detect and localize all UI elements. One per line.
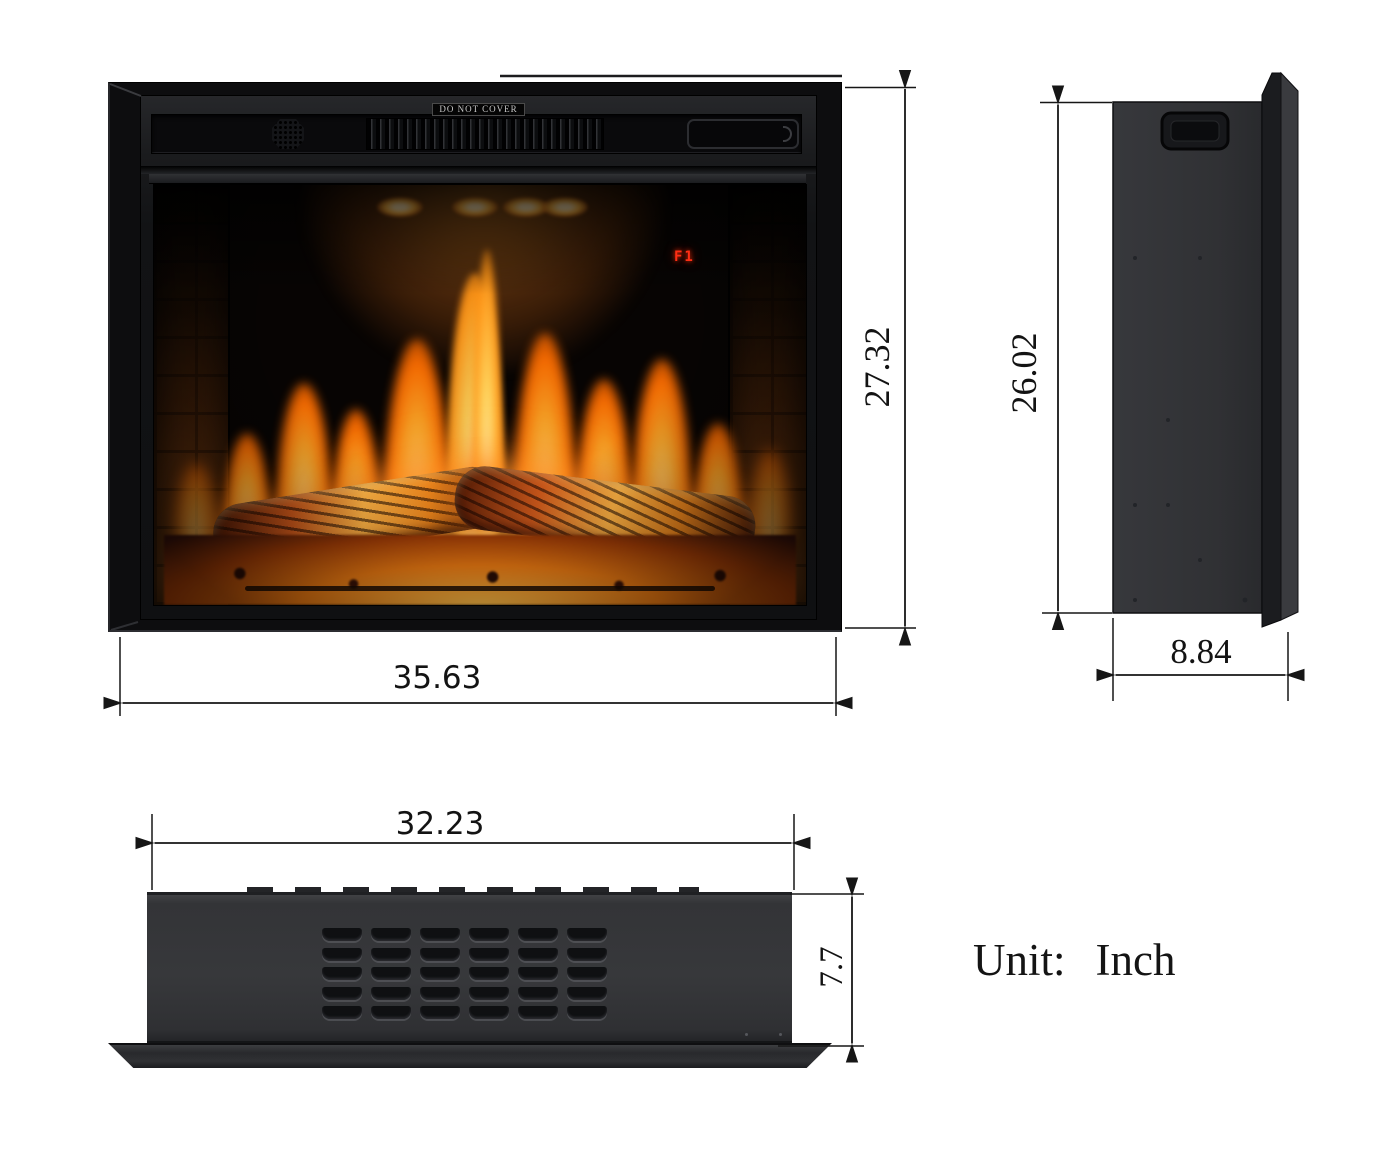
dim-label-top-width: 32.23 <box>360 806 520 842</box>
dim-label-side-depth: 8.84 <box>1131 632 1271 672</box>
dim-label-top-depth: 7.7 <box>815 897 849 1037</box>
front-bevel-bottom-left <box>111 622 138 630</box>
dim-side-height <box>1040 103 1112 614</box>
dimension-and-sideview-drawing <box>0 0 1400 1176</box>
unit-note-value: Inch <box>1096 935 1176 985</box>
dim-label-front-width: 35.63 <box>357 660 517 696</box>
unit-note-label: Unit: <box>973 935 1066 985</box>
front-bevel-top-left <box>110 84 141 96</box>
unit-note: Unit:Inch <box>973 934 1175 986</box>
dim-label-front-height: 27.32 <box>859 297 895 437</box>
side-view <box>1113 73 1298 627</box>
dim-label-side-height: 26.02 <box>1006 303 1042 443</box>
fireplace-dimension-diagram: DO NOT COVER <box>0 0 1400 1176</box>
